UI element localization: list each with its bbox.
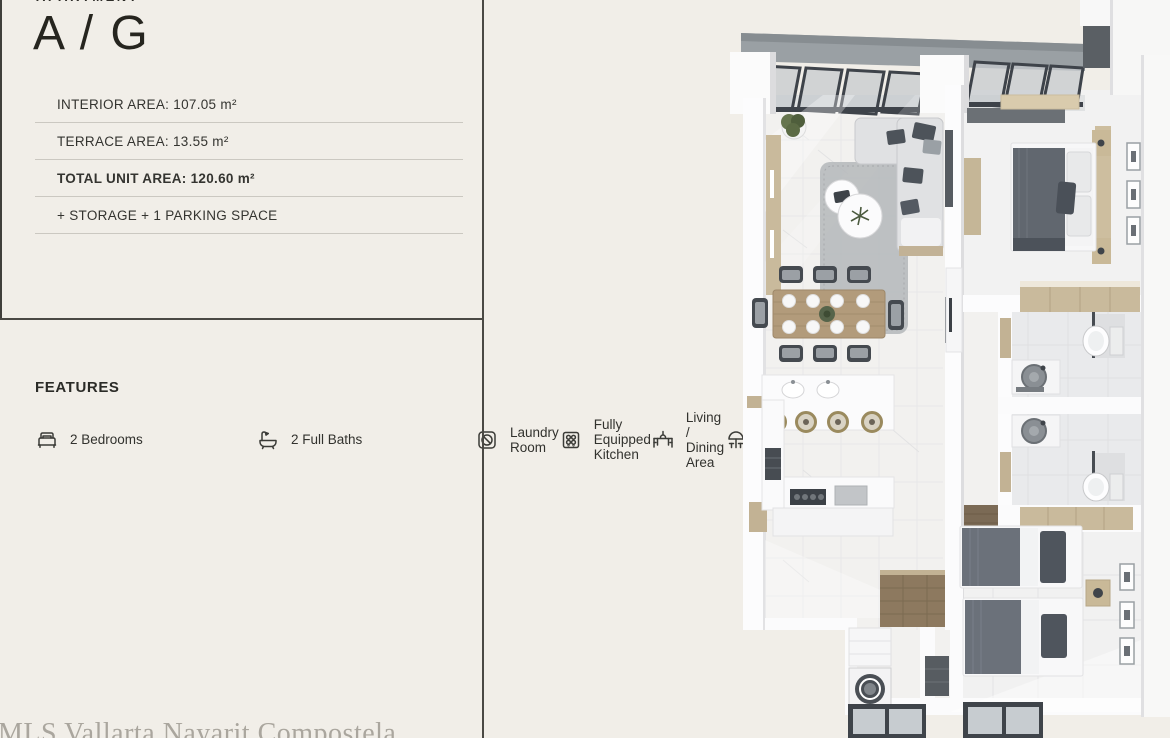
- features-heading: FEATURES: [35, 379, 120, 396]
- feature-label: 2 Bedrooms: [70, 432, 143, 447]
- apartment-eyebrow: APARTMENT: [36, 0, 139, 4]
- horizontal-divider: [0, 318, 484, 320]
- floor-plan-render: [483, 0, 1170, 738]
- bathtub-icon: [256, 428, 280, 452]
- bed-icon: [35, 428, 59, 452]
- features-list: 2 Bedrooms 2 Full Baths Laundry Room Ful…: [35, 421, 475, 458]
- area-spec-list: INTERIOR AREA: 107.05 m² TERRACE AREA: 1…: [35, 86, 463, 234]
- spec-storage-parking: + STORAGE + 1 PARKING SPACE: [35, 197, 463, 234]
- feature-label: 2 Full Baths: [291, 432, 362, 447]
- feature-baths: 2 Full Baths: [256, 421, 475, 458]
- brochure-page: APARTMENT A / G INTERIOR AREA: 107.05 m²…: [0, 0, 1170, 738]
- info-panel: APARTMENT A / G INTERIOR AREA: 107.05 m²…: [0, 0, 483, 738]
- spec-interior-area: INTERIOR AREA: 107.05 m²: [35, 86, 463, 123]
- spec-terrace-area: TERRACE AREA: 13.55 m²: [35, 123, 463, 160]
- floor-plan-svg: [483, 0, 1170, 738]
- watermark-text: MLS Vallarta Nayarit Compostela: [0, 718, 396, 738]
- spec-total-area: TOTAL UNIT AREA: 120.60 m²: [35, 160, 463, 197]
- feature-bedrooms: 2 Bedrooms: [35, 421, 256, 458]
- page-title: A / G: [33, 6, 150, 61]
- left-edge-rule: [0, 0, 2, 319]
